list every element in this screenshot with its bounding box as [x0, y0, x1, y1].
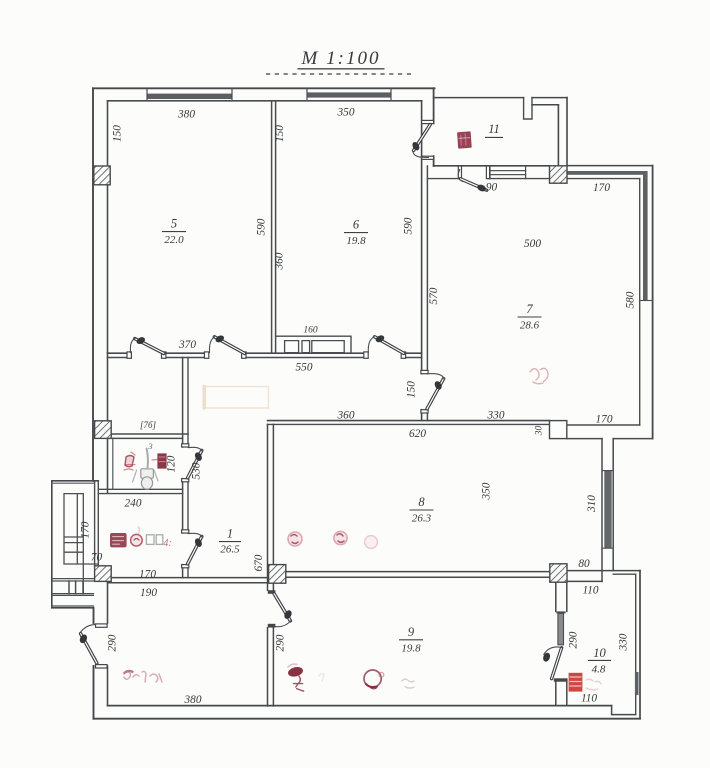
svg-text:19.8: 19.8 [346, 235, 366, 247]
svg-text:550: 550 [296, 362, 313, 374]
svg-text:4.8: 4.8 [592, 664, 606, 676]
svg-text:26.5: 26.5 [220, 544, 240, 556]
svg-text:350: 350 [481, 482, 493, 500]
svg-text:170: 170 [593, 182, 610, 194]
svg-text:590: 590 [403, 217, 415, 234]
svg-text:90: 90 [486, 182, 498, 194]
svg-text:30: 30 [535, 426, 545, 437]
svg-text:170: 170 [80, 521, 92, 538]
svg-text:28.6: 28.6 [520, 320, 540, 332]
svg-text:380: 380 [184, 694, 202, 706]
svg-text:170: 170 [596, 414, 613, 426]
svg-text:290: 290 [568, 631, 580, 648]
svg-text:570: 570 [428, 287, 440, 304]
svg-text:5: 5 [171, 217, 177, 231]
svg-text:80: 80 [578, 558, 590, 570]
svg-text:10: 10 [593, 646, 606, 660]
svg-text:380: 380 [177, 109, 195, 121]
svg-text:9: 9 [408, 625, 415, 639]
svg-text:M 1:100: M 1:100 [301, 48, 381, 69]
svg-text:290: 290 [275, 634, 287, 651]
svg-text:120: 120 [166, 455, 178, 472]
svg-text:670: 670 [253, 554, 265, 571]
svg-text:8: 8 [418, 495, 425, 509]
svg-text:620: 620 [409, 428, 426, 440]
svg-text:310: 310 [586, 495, 598, 513]
svg-text:150: 150 [406, 381, 418, 398]
svg-text:[7б]: [7б] [140, 420, 157, 430]
svg-text:330: 330 [487, 410, 505, 422]
svg-text:4:: 4: [163, 538, 171, 549]
svg-text:26.3: 26.3 [412, 513, 432, 525]
svg-text:150: 150 [274, 125, 286, 142]
svg-text:19.8: 19.8 [401, 643, 421, 655]
svg-text:350: 350 [337, 107, 355, 119]
svg-text:22.0: 22.0 [164, 234, 184, 246]
svg-text:170: 170 [139, 569, 156, 581]
svg-text:11: 11 [488, 122, 500, 136]
svg-text:1: 1 [227, 527, 233, 541]
svg-text:190: 190 [140, 587, 157, 599]
svg-text:580: 580 [625, 291, 637, 308]
svg-text:590: 590 [256, 218, 268, 235]
svg-text:110: 110 [582, 585, 598, 597]
svg-text:160: 160 [303, 326, 318, 336]
svg-text:500: 500 [524, 238, 541, 250]
svg-text:360: 360 [274, 252, 286, 270]
svg-text:530: 530 [191, 462, 203, 479]
svg-text:110: 110 [581, 693, 597, 705]
svg-text:7: 7 [526, 302, 533, 316]
svg-text:370: 370 [178, 339, 196, 351]
svg-text:6: 6 [353, 218, 360, 232]
svg-text:3: 3 [147, 441, 152, 451]
svg-text:360: 360 [337, 410, 355, 422]
svg-text:70: 70 [91, 552, 103, 564]
svg-text:330: 330 [618, 633, 630, 651]
svg-text:150: 150 [112, 125, 124, 142]
svg-text:290: 290 [107, 634, 119, 651]
svg-text:240: 240 [125, 498, 142, 510]
